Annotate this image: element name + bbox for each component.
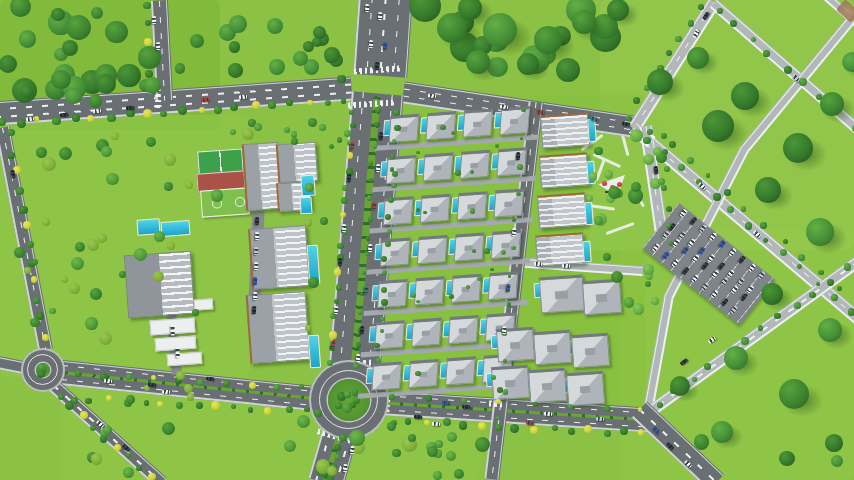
tree <box>185 181 193 189</box>
tree <box>176 371 185 380</box>
car <box>372 202 377 210</box>
car <box>526 421 534 426</box>
roadside-tree <box>325 100 332 107</box>
tree <box>106 173 118 185</box>
roadside-tree <box>510 424 519 433</box>
roadside-tree <box>381 299 388 306</box>
villa-roof-vent <box>504 201 512 207</box>
roadside-tree <box>387 229 391 233</box>
car <box>368 244 373 252</box>
parked-car <box>730 285 738 294</box>
car <box>93 109 101 114</box>
tree <box>475 437 490 452</box>
block-pool <box>584 202 594 226</box>
parked-car <box>652 243 660 252</box>
roundabout-bush <box>342 403 351 412</box>
roadside-tree <box>774 313 780 319</box>
large-tree <box>572 10 596 34</box>
large-tree <box>731 82 759 110</box>
tree <box>320 217 328 225</box>
tree <box>779 451 795 467</box>
parked-car <box>681 266 689 275</box>
villa <box>491 230 522 259</box>
villa-roof-vent <box>596 294 607 302</box>
complex-pool <box>161 220 191 237</box>
terraced-building <box>124 251 195 319</box>
roadside-tree <box>65 401 74 410</box>
car <box>104 378 112 383</box>
car <box>534 262 542 267</box>
tree <box>624 297 635 308</box>
roadside-tree <box>604 406 611 413</box>
car <box>156 42 161 50</box>
roadside-tree <box>273 384 280 391</box>
car <box>253 292 258 300</box>
tree <box>24 267 31 274</box>
roadside-tree <box>375 107 381 113</box>
car <box>26 117 34 122</box>
roadside-tree <box>214 106 222 114</box>
tree <box>96 74 116 94</box>
yellow-bush <box>249 382 256 389</box>
large-tree <box>724 346 748 370</box>
roadside-tree <box>196 402 203 409</box>
villa-roof-vent <box>428 248 436 254</box>
car <box>148 382 156 387</box>
apartment-building <box>246 291 311 364</box>
tree <box>153 271 164 282</box>
villa <box>454 232 485 261</box>
roadside-tree <box>107 114 115 122</box>
car <box>350 142 355 150</box>
tree <box>91 453 102 464</box>
tree <box>269 59 285 75</box>
yellow-bush <box>307 100 313 106</box>
roadside-tree <box>516 192 521 197</box>
tree <box>594 216 603 225</box>
tree <box>416 300 420 304</box>
parked-car <box>711 269 719 278</box>
roadside-tree <box>780 249 787 256</box>
car <box>162 389 170 394</box>
block-pool <box>582 241 591 263</box>
tree <box>449 294 454 299</box>
car <box>126 106 134 111</box>
roadside-tree <box>160 111 166 117</box>
roadside-tree <box>668 241 673 246</box>
tree <box>66 15 91 40</box>
roadside-tree <box>90 425 96 431</box>
tree <box>337 75 345 83</box>
car <box>462 405 470 410</box>
car <box>254 247 259 255</box>
roadside-tree <box>52 117 60 125</box>
yellow-bush <box>199 107 205 113</box>
roadside-tree <box>633 97 640 104</box>
roadside-tree <box>341 197 348 204</box>
roadside-tree <box>552 425 558 431</box>
tree <box>117 64 141 88</box>
roadside-tree <box>367 195 372 200</box>
car <box>255 217 260 225</box>
yellow-bush <box>638 429 645 436</box>
apartment-block <box>540 112 590 148</box>
roadside-tree <box>230 103 238 111</box>
large-tree <box>806 218 834 246</box>
tree <box>392 449 400 457</box>
parked-car <box>689 216 697 225</box>
parked-car <box>691 254 699 263</box>
roadside-tree <box>763 238 768 243</box>
tree <box>71 257 84 270</box>
yellow-bush <box>148 473 156 480</box>
tree <box>59 147 72 160</box>
apartment-block <box>535 232 585 266</box>
large-tree <box>687 47 709 69</box>
car <box>338 258 343 266</box>
roadside-tree <box>358 310 362 314</box>
roadside-tree <box>844 263 852 271</box>
villa-roof-vent <box>585 348 596 356</box>
parked-car <box>738 255 746 264</box>
tree <box>167 242 175 250</box>
car <box>383 42 388 50</box>
tree <box>228 63 243 78</box>
tree <box>119 271 126 278</box>
roadside-tree <box>369 178 373 182</box>
tree <box>291 138 298 145</box>
tree <box>229 15 247 33</box>
roadside-tree <box>784 66 792 74</box>
tree <box>304 219 312 227</box>
large-tree <box>670 376 690 396</box>
tree <box>466 285 469 288</box>
villa <box>408 359 439 388</box>
parked-car <box>736 277 744 286</box>
roadside-tree <box>604 430 612 438</box>
car <box>342 224 347 232</box>
tree <box>284 440 296 452</box>
parked-car <box>707 254 715 263</box>
yellow-bush <box>143 109 152 118</box>
roadside-tree <box>657 402 662 407</box>
large-tree <box>783 133 813 163</box>
roadside-tree <box>704 363 711 370</box>
tree <box>416 208 420 212</box>
roadside-tree <box>827 279 834 286</box>
tree <box>89 94 103 108</box>
roadside-tree <box>327 360 333 366</box>
roadside-tree <box>374 343 379 348</box>
roadside-tree <box>342 185 348 191</box>
car <box>152 16 157 24</box>
roundabout-bush <box>38 364 45 371</box>
roadside-tree <box>268 101 276 109</box>
large-tree <box>534 26 562 54</box>
tree <box>643 154 654 165</box>
large-tree <box>761 283 783 305</box>
yellow-bush <box>42 334 49 341</box>
road-edge <box>354 0 361 74</box>
roadside-tree <box>392 139 396 143</box>
red-umbrella <box>602 181 607 186</box>
parked-car <box>687 238 695 247</box>
tree <box>447 432 457 442</box>
parked-car <box>717 261 725 270</box>
car <box>432 422 440 427</box>
parked-car <box>740 293 748 302</box>
roadside-tree <box>568 428 576 436</box>
roadside-tree <box>286 406 293 413</box>
roadside-tree <box>713 193 720 200</box>
tree <box>411 293 416 298</box>
tree <box>455 170 461 176</box>
tree <box>643 264 654 275</box>
villa <box>496 147 527 176</box>
car <box>375 62 380 70</box>
tree <box>61 276 68 283</box>
roadside-tree <box>143 2 150 9</box>
parked-car <box>701 282 709 291</box>
yellow-bush <box>151 375 156 380</box>
roadside-tree <box>19 206 28 215</box>
tree <box>603 253 611 261</box>
roadside-tree <box>16 187 23 194</box>
tree <box>349 430 365 446</box>
tree <box>433 471 442 480</box>
roadside-tree <box>341 98 346 103</box>
block-pool <box>587 119 597 143</box>
car <box>252 306 257 314</box>
tree <box>337 137 343 143</box>
villa-roof-vent <box>388 291 396 297</box>
villa-roof-vent <box>459 328 467 334</box>
roadside-tree <box>373 144 378 149</box>
tree <box>611 271 623 283</box>
car <box>365 4 370 12</box>
roadside-tree <box>643 137 650 144</box>
villa-roof-vent <box>425 289 433 295</box>
large-tree <box>517 53 539 75</box>
villa-roof-vent <box>542 383 553 391</box>
car <box>255 232 260 240</box>
large-tree <box>818 318 842 342</box>
car <box>356 354 361 362</box>
tree <box>65 88 81 104</box>
car <box>254 262 259 270</box>
yellow-bush <box>478 422 486 430</box>
tree <box>101 146 112 157</box>
yellow-bush <box>584 425 592 433</box>
roadside-tree <box>666 206 672 212</box>
tree <box>319 124 325 130</box>
tree <box>324 47 339 62</box>
roadside-tree <box>393 109 400 116</box>
yellow-bush <box>530 426 538 434</box>
tree <box>211 189 224 202</box>
villa <box>462 109 493 138</box>
villa-roof-vent <box>580 386 591 394</box>
roadside-tree <box>126 109 134 117</box>
yellow-bush <box>334 268 342 276</box>
yellow-bush <box>31 276 38 283</box>
car <box>170 324 175 335</box>
tree <box>491 375 496 380</box>
villa <box>371 361 402 390</box>
roadside-tree <box>336 284 343 291</box>
villa <box>457 191 488 220</box>
roadside-tree <box>388 197 394 203</box>
car <box>206 376 214 381</box>
roadside-tree <box>678 164 685 171</box>
apartment-block <box>537 192 587 228</box>
parked-car <box>681 246 689 255</box>
tree <box>187 393 194 400</box>
parked-car <box>748 263 756 272</box>
villa-roof-vent <box>547 345 558 353</box>
parked-car <box>728 247 736 256</box>
tree <box>327 466 337 476</box>
villa <box>488 271 519 300</box>
parked-car <box>720 277 728 286</box>
tree <box>392 171 398 177</box>
tree <box>427 446 438 457</box>
tree <box>90 288 102 300</box>
roadside-tree <box>508 274 512 278</box>
parked-car <box>720 297 728 306</box>
car <box>253 277 258 285</box>
roadside-tree <box>675 36 681 42</box>
tree <box>825 434 843 452</box>
tree <box>293 51 308 66</box>
roadside-tree <box>176 402 183 409</box>
roadside-tree <box>647 129 653 135</box>
tree <box>440 125 445 130</box>
car <box>334 306 339 314</box>
tree <box>329 144 334 149</box>
roadside-tree <box>664 166 670 172</box>
tree <box>284 127 290 133</box>
tree <box>653 147 662 156</box>
tree <box>416 151 419 154</box>
complex-pool <box>308 335 321 369</box>
apartment-block <box>539 152 589 188</box>
tree <box>62 40 78 56</box>
roadside-tree <box>568 404 573 409</box>
car <box>562 264 570 269</box>
roadside-tree <box>798 254 805 261</box>
parked-car <box>718 240 726 249</box>
roadside-tree <box>144 400 149 405</box>
roadside-tree <box>511 246 515 250</box>
villa-roof-vent <box>385 333 393 339</box>
roadside-tree <box>231 404 236 409</box>
roadside-tree <box>178 106 187 115</box>
villa-roof-vent <box>473 121 481 127</box>
parked-car <box>671 258 679 267</box>
roadside-tree <box>334 444 341 451</box>
roadside-tree <box>521 108 525 112</box>
villa-roof-vent <box>456 369 464 375</box>
aerial-site-render <box>0 0 854 480</box>
large-tree <box>702 110 734 142</box>
facility-building <box>167 352 203 366</box>
parked-car <box>662 230 670 239</box>
roadside-tree <box>380 317 384 321</box>
complex-pool <box>299 197 312 215</box>
large-tree <box>820 92 844 116</box>
roadside-tree <box>126 374 132 380</box>
parked-car <box>710 290 718 299</box>
tree <box>126 395 135 404</box>
villa-roof-vent <box>422 330 430 336</box>
tree <box>19 30 37 48</box>
parked-car <box>757 271 765 280</box>
large-villa <box>582 279 622 316</box>
large-tree <box>466 50 490 74</box>
tree <box>305 325 311 331</box>
parked-car <box>730 305 738 314</box>
tree <box>30 318 39 327</box>
roadside-tree <box>717 8 723 14</box>
car <box>414 415 422 420</box>
roadside-tree <box>368 216 373 221</box>
roadside-tree <box>390 154 395 159</box>
yellow-bush <box>87 115 94 122</box>
tree <box>85 317 98 330</box>
tree <box>409 0 441 22</box>
court-circle <box>235 196 246 207</box>
large-villa <box>533 330 572 366</box>
car <box>376 164 381 172</box>
parked-car <box>661 251 669 260</box>
tree <box>503 389 509 395</box>
yellow-bush <box>347 152 354 159</box>
roadside-tree <box>763 50 770 57</box>
yellow-bush <box>329 331 336 338</box>
roadside-tree <box>517 164 523 170</box>
tree <box>267 18 283 34</box>
tree <box>242 128 254 140</box>
large-tree <box>607 0 629 21</box>
large-tree <box>755 177 781 203</box>
roadside-tree <box>327 475 335 480</box>
tree <box>604 170 613 179</box>
parked-car <box>678 230 686 239</box>
tree <box>608 186 621 199</box>
tree <box>192 309 199 316</box>
car <box>442 401 450 406</box>
tree <box>51 70 70 89</box>
car <box>596 417 604 422</box>
tree <box>308 277 319 288</box>
villa-roof-vent <box>430 206 438 212</box>
large-villa <box>571 333 610 369</box>
roadside-tree <box>356 342 361 347</box>
roadside-tree <box>394 125 400 131</box>
parked-car <box>699 224 707 233</box>
roundabout-island <box>328 379 370 421</box>
roadside-tree <box>666 223 671 228</box>
parked-car <box>701 262 709 271</box>
car <box>364 286 369 294</box>
roadside-tree <box>335 454 341 460</box>
villa-roof-vent <box>507 160 515 166</box>
tree <box>49 308 55 314</box>
villa-roof-vent <box>470 162 478 168</box>
tree <box>694 434 710 450</box>
car <box>175 346 180 357</box>
